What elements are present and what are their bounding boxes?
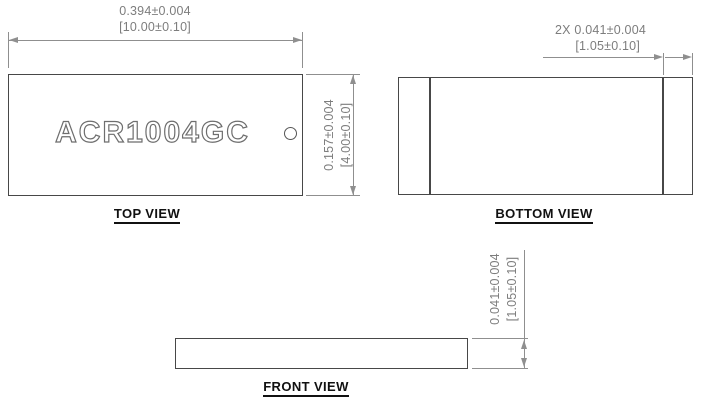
dimension-value-mm: [1.05±0.10]: [504, 245, 521, 333]
part-marking: ACR1004GC: [10, 116, 295, 150]
top-view-height-dimension-text: 0.157±0.004 [4.00±0.10]: [321, 90, 355, 180]
bottom-view-pad-dimension-line2: [1.05±0.10]: [510, 38, 640, 54]
part-marking-text: ACR1004GC: [55, 116, 250, 150]
dimension-line: [524, 250, 525, 368]
arrow-down-icon: [521, 358, 527, 367]
technical-drawing: 0.394±0.004 [10.00±0.10] ACR1004GC 0.157…: [0, 0, 701, 403]
bottom-view-outline: [398, 77, 693, 195]
dimension-value-mm: [4.00±0.10]: [338, 90, 355, 180]
extension-line: [306, 195, 360, 196]
orientation-mark-circle: [284, 127, 297, 140]
extension-line: [472, 368, 528, 369]
front-view-thickness-dimension-text: 0.041±0.004 [1.05±0.10]: [487, 245, 521, 333]
dimension-value-inch: 0.041±0.004: [487, 245, 504, 333]
top-view-width-dimension-text: 0.394±0.004 [10.00±0.10]: [90, 3, 220, 35]
extension-line: [692, 53, 693, 75]
arrow-down-icon: [350, 186, 356, 195]
right-pad-edge-line: [662, 78, 664, 194]
dimension-value-mm: [10.00±0.10]: [90, 19, 220, 35]
arrow-up-icon: [521, 340, 527, 349]
dimension-value-mm: [1.05±0.10]: [510, 38, 640, 54]
extension-line: [472, 338, 528, 339]
extension-line: [663, 53, 664, 75]
top-view-caption: TOP VIEW: [77, 205, 217, 224]
bottom-view-caption: BOTTOM VIEW: [474, 205, 614, 224]
dimension-value-inch: 0.157±0.004: [321, 90, 338, 180]
dimension-line: [9, 40, 302, 41]
arrow-left-icon: [9, 37, 18, 43]
leader-line: [543, 57, 654, 58]
arrow-right-icon: [654, 54, 663, 60]
front-view-caption: FRONT VIEW: [236, 378, 376, 397]
bottom-view-pad-dimension-line1: 2X 0.041±0.004: [510, 22, 646, 38]
front-view-outline: [175, 338, 468, 369]
arrow-right-icon: [293, 37, 302, 43]
dimension-line: [665, 57, 683, 58]
front-view-label: FRONT VIEW: [263, 379, 349, 397]
dimension-value-inch: 0.394±0.004: [90, 3, 220, 19]
left-pad-edge-line: [429, 78, 431, 194]
extension-line: [302, 32, 303, 68]
bottom-view-label: BOTTOM VIEW: [495, 206, 592, 224]
top-view-label: TOP VIEW: [114, 206, 180, 224]
arrow-right-icon: [683, 54, 692, 60]
dimension-value-inch: 2X 0.041±0.004: [510, 22, 646, 38]
arrow-up-icon: [350, 75, 356, 84]
